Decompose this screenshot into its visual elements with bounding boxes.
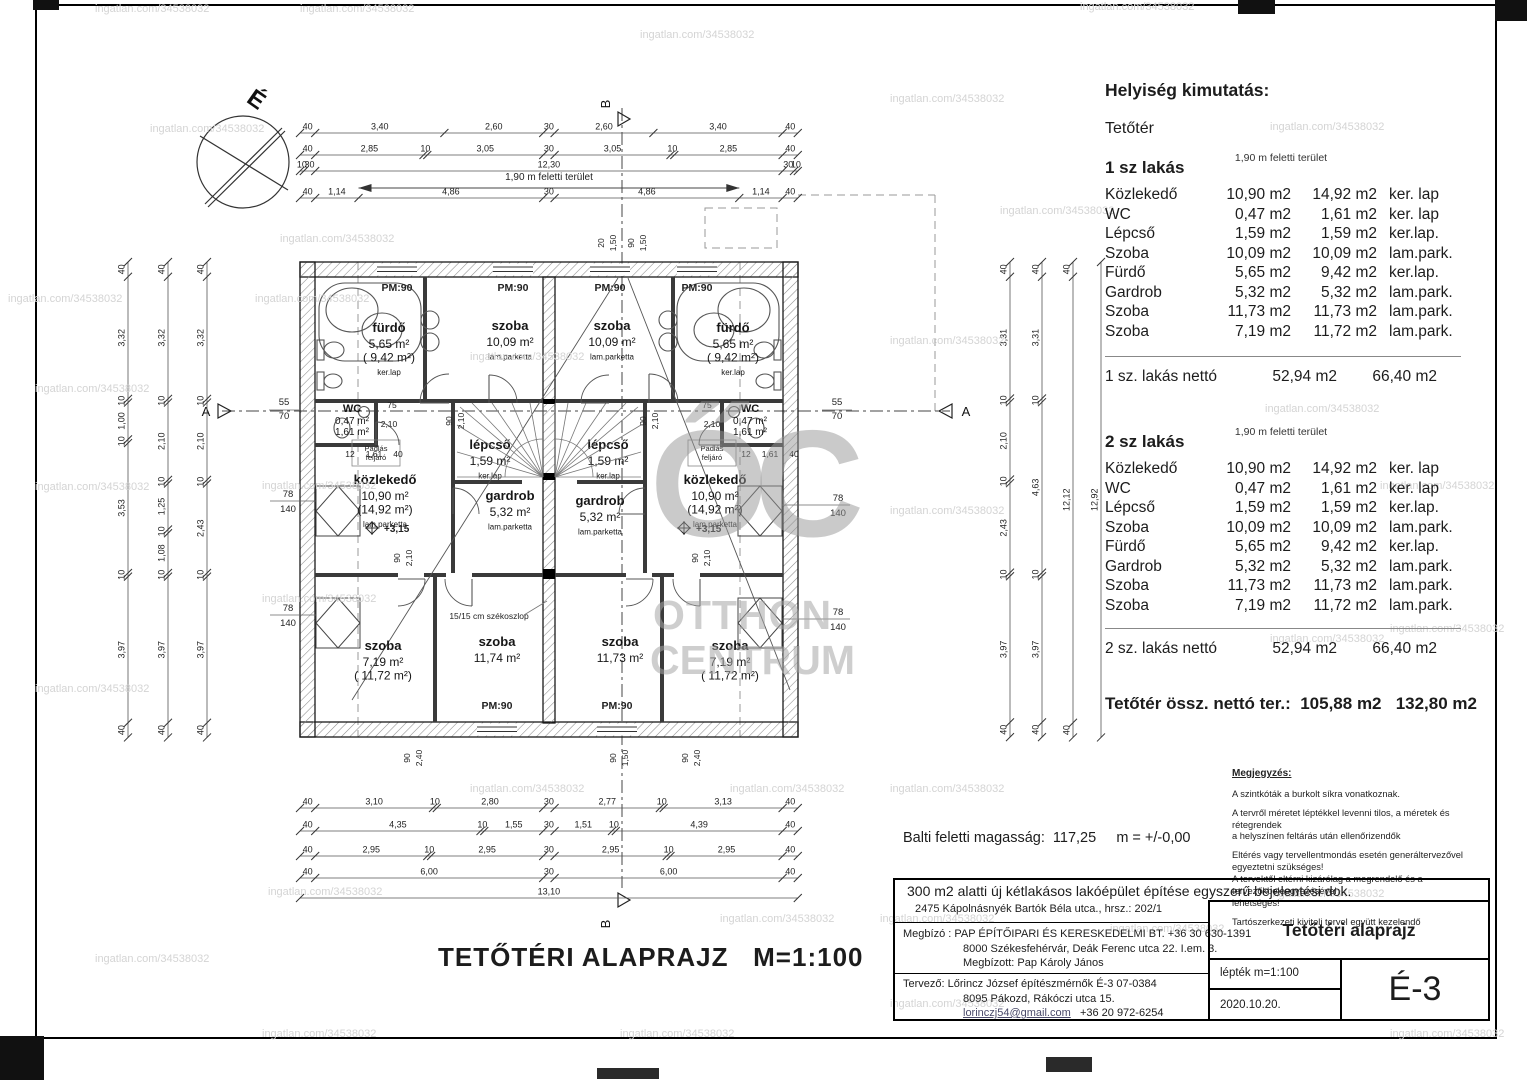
watermark-text: ingatlan.com/34538032: [890, 783, 1004, 795]
dim-label: 1,14: [328, 187, 346, 197]
small-dim-label: 1,50: [608, 234, 618, 251]
door-swing-arc: [581, 375, 609, 403]
schedule-row: Szoba7,19 m211,72 m2lam.park.: [1105, 323, 1483, 343]
dim-label: 2,95: [478, 845, 496, 855]
wall-left: [300, 262, 315, 737]
small-dim-label: 20: [596, 238, 606, 248]
watermark-text: ingatlan.com/34538032: [720, 913, 834, 925]
small-dim-label: 90: [402, 753, 412, 763]
room-label: 7,19 m²: [363, 655, 404, 669]
window-size-label: 140: [830, 622, 846, 633]
room-label: fürdő: [372, 320, 405, 335]
watermark-text: ingatlan.com/34538032: [262, 1028, 376, 1040]
dim-label: 2,85: [720, 144, 738, 154]
dim-label: 10: [609, 820, 619, 830]
schedule-title: Helyiség kimutatás:: [1105, 80, 1483, 101]
dim-label: 3,97: [196, 641, 206, 659]
schedule-cell: 11,73 m2: [1291, 577, 1377, 597]
schedule-cell: lam.park.: [1377, 245, 1483, 265]
watermark-text: ingatlan.com/34538032: [300, 3, 414, 15]
schedule-row: Közlekedő10,90 m214,92 m2ker. lap: [1105, 460, 1483, 480]
dim-label: 10: [999, 569, 1009, 579]
room-label: szoba: [712, 638, 750, 653]
small-dim-label: 2,10: [404, 549, 414, 566]
dim-label: 10: [999, 395, 1009, 405]
dim-label: 30: [544, 820, 554, 830]
dim-label: 40: [1062, 264, 1072, 274]
schedule-cell: Szoba: [1105, 245, 1207, 265]
room-label: szoba: [492, 318, 530, 333]
total-label: Tetőtér össz. nettó ter.:: [1105, 694, 1291, 713]
door-swing-arc: [626, 579, 653, 606]
small-dim-label: 2,10: [702, 549, 712, 566]
room-label: lam.parketta: [590, 353, 635, 362]
unit1-net1: 52,94 m2: [1241, 368, 1337, 386]
schedule-cell: 14,92 m2: [1291, 186, 1377, 206]
small-dim-label: 1,61: [762, 449, 779, 459]
roof-window-icon: [738, 486, 782, 536]
dim-label: 40: [1031, 264, 1041, 274]
room-label: 11,74 m²: [474, 651, 520, 665]
dim-label: 10: [664, 845, 674, 855]
dim-label: 40: [196, 264, 206, 274]
schedule-cell: Gardrob: [1105, 284, 1207, 304]
dim-label: 2,85: [361, 144, 379, 154]
schedule-cell: 0,47 m2: [1207, 206, 1291, 226]
room-label: 7,19 m²: [710, 655, 751, 669]
watermark-text: ingatlan.com/34538032: [35, 481, 149, 493]
dim-label: 10: [424, 845, 434, 855]
parapet-label: PM:90: [382, 282, 413, 294]
watermark-text: ingatlan.com/34538032: [35, 383, 149, 395]
watermark-text: ingatlan.com/34538032: [1080, 1, 1194, 13]
drawing-title: TETŐTÉRI ALAPRAJZ M=1:100: [438, 942, 864, 973]
room-label: ker.lap: [596, 472, 620, 481]
project-description: 300 m2 alatti új kétlakásos lakóépület é…: [907, 883, 1351, 899]
schedule-cell: lam.park.: [1377, 577, 1483, 597]
room-label: 5,32 m²: [580, 510, 621, 524]
wall-bottom: [300, 722, 798, 737]
title-block-right: Tetőtéri alaprajz lépték m=1:100 2020.10…: [1208, 900, 1488, 1019]
window-size-label: 78: [833, 607, 844, 618]
dim-label: 12,30: [538, 160, 561, 170]
schedule-cell: Közlekedő: [1105, 460, 1207, 480]
dim-label: 40: [999, 725, 1009, 735]
dim-label: 10: [196, 570, 206, 580]
dim-label: 1,00: [117, 412, 127, 430]
dim-label: 40: [785, 845, 795, 855]
room-label: 10,09 m²: [588, 335, 635, 349]
room-label: 10,09 m²: [486, 335, 533, 349]
designer-line: Tervező: Lőrincz József építészmérnők É-…: [903, 977, 1163, 992]
parapet-label: PM:90: [602, 700, 633, 712]
dim-label: 2,77: [598, 797, 616, 807]
schedule-row: WC0,47 m21,61 m2ker. lap: [1105, 206, 1483, 226]
room-label: szoba: [365, 638, 403, 653]
dim-label: 40: [1031, 725, 1041, 735]
room-label: 0,47 m²: [733, 416, 768, 427]
level-label: +3,15: [696, 524, 722, 535]
small-dim-label: 90: [444, 416, 454, 426]
unit1-net2: 66,40 m2: [1337, 368, 1437, 386]
dim-label: 10: [1031, 569, 1041, 579]
dim-label: 3,40: [709, 122, 727, 132]
small-dim-label: 90: [680, 753, 690, 763]
schedule-cell: 11,73 m2: [1207, 577, 1291, 597]
room-label: ( 11,72 m²): [354, 669, 412, 683]
offset-label: 70: [279, 411, 290, 422]
dim-label: 40: [785, 797, 795, 807]
schedule-row: Szoba11,73 m211,73 m2lam.park.: [1105, 303, 1483, 323]
room-label: gardrob: [575, 493, 624, 508]
schedule-cell: 0,47 m2: [1207, 480, 1291, 500]
schedule-row: Lépcső1,59 m21,59 m2ker.lap.: [1105, 225, 1483, 245]
bidet-icon: [774, 372, 781, 390]
divider: [895, 973, 1210, 974]
room-label: gardrob: [485, 488, 534, 503]
schedule-cell: Közlekedő: [1105, 186, 1207, 206]
dim-label: 10: [117, 436, 127, 446]
dim-label: 3,53: [117, 499, 127, 517]
parapet-label: PM:90: [498, 282, 529, 294]
dim-label: 3,10: [365, 797, 383, 807]
schedule-cell: lam.park.: [1377, 284, 1483, 304]
dim-label: 3,97: [1031, 641, 1041, 659]
schedule-cell: lam.park.: [1377, 323, 1483, 343]
dim-label: 3,97: [999, 641, 1009, 659]
dim-label: 1,14: [752, 187, 770, 197]
schedule-cell: 10,09 m2: [1291, 245, 1377, 265]
schedule-cell: 1,59 m2: [1291, 225, 1377, 245]
dim-label: 4,35: [389, 820, 407, 830]
room-label: (14,92 m²): [687, 503, 742, 517]
schedule-cell: 11,73 m2: [1291, 303, 1377, 323]
schedule-cell: Gardrob: [1105, 558, 1207, 578]
dim-label: 10: [999, 476, 1009, 486]
room-label: szoba: [479, 634, 517, 649]
schedule-row: Gardrob5,32 m25,32 m2lam.park.: [1105, 284, 1483, 304]
section-a-label-right: A: [962, 404, 971, 419]
door-swing-arc: [619, 488, 645, 514]
schedule-cell: 10,90 m2: [1207, 460, 1291, 480]
schedule-cell: lam.park.: [1377, 303, 1483, 323]
schedule-cell: lam.park.: [1377, 519, 1483, 539]
room-label: lam.parketta: [578, 528, 623, 537]
dim-label: 40: [117, 725, 127, 735]
room-label: 5,65 m²: [369, 337, 410, 351]
schedule-cell: ker. lap: [1377, 460, 1483, 480]
room-label: szoba: [602, 634, 640, 649]
small-dim-label: 2,40: [692, 749, 702, 766]
watermark-text: ingatlan.com/34538032: [262, 480, 376, 492]
watermark-text: ingatlan.com/34538032: [280, 233, 394, 245]
dim-label: 10: [430, 797, 440, 807]
schedule-cell: 9,42 m2: [1291, 538, 1377, 558]
room-label: 0,47 m²: [335, 416, 370, 427]
door-swing-arc: [398, 579, 425, 606]
offset-label: 55: [279, 397, 290, 408]
sheet-number: É-3: [1342, 960, 1488, 1019]
unit2-net-row: 2 sz. lakás nettó 52,94 m2 66,40 m2: [1105, 640, 1437, 658]
dim-label: 4,63: [1031, 479, 1041, 497]
schedule-cell: 5,32 m2: [1291, 284, 1377, 304]
schedule-cell: 10,09 m2: [1207, 245, 1291, 265]
unit1-header: 1 sz lakás 1,90 m feletti terület: [1105, 158, 1184, 178]
schedule-cell: 1,61 m2: [1291, 480, 1377, 500]
room-schedule: Helyiség kimutatás: Tetőtér 1 sz lakás 1…: [1105, 80, 1483, 740]
parapet-label: PM:90: [682, 282, 713, 294]
schedule-cell: 11,72 m2: [1291, 323, 1377, 343]
dim-label: 10: [157, 570, 167, 580]
designer-phone: +36 20 972-6254: [1080, 1007, 1164, 1019]
schedule-row: Közlekedő10,90 m214,92 m2ker. lap: [1105, 186, 1483, 206]
schedule-cell: Fürdő: [1105, 264, 1207, 284]
schedule-cell: 5,32 m2: [1207, 284, 1291, 304]
dim-label: 10: [196, 396, 206, 406]
room-label: 10,90 m²: [691, 489, 738, 503]
arrowhead-icon: [726, 184, 739, 192]
room-label: ker.lap: [721, 368, 745, 377]
schedule-cell: WC: [1105, 206, 1207, 226]
watermark-text: ingatlan.com/34538032: [255, 293, 369, 305]
room-label: 11,73 m²: [597, 651, 643, 665]
small-dim-label: 90: [392, 553, 402, 563]
small-dim-label: 1,61: [366, 449, 383, 459]
unit1-rule: [1105, 356, 1461, 357]
unit1-name: 1 sz lakás: [1105, 158, 1184, 177]
client-line: Megbízó : PAP ÉPÍTŐIPARI ÉS KERESKEDELMI…: [903, 927, 1251, 942]
dim-label: 1,25: [157, 498, 167, 516]
schedule-cell: 5,65 m2: [1207, 538, 1291, 558]
dim-label: 3,32: [117, 329, 127, 347]
designer-info: Tervező: Lőrincz József építészmérnők É-…: [903, 977, 1163, 1021]
schedule-cell: 10,09 m2: [1291, 519, 1377, 539]
unit2-name: 2 sz lakás: [1105, 432, 1184, 451]
small-dim-label: 90: [690, 553, 700, 563]
compass-north-label: É: [242, 83, 271, 115]
small-dim-label: 2,10: [456, 412, 466, 429]
schedule-cell: 10,90 m2: [1207, 186, 1291, 206]
unit2-header: 2 sz lakás 1,90 m feletti terület: [1105, 432, 1184, 452]
watermark-text: ingatlan.com/34538032: [890, 335, 1004, 347]
dim-label: 10: [477, 820, 487, 830]
dim-label: 40: [303, 845, 313, 855]
dim-label: 2,10: [196, 432, 206, 450]
schedule-cell: Lépcső: [1105, 225, 1207, 245]
small-dim-label: 12: [741, 449, 751, 459]
schedule-row: Szoba10,09 m210,09 m2lam.park.: [1105, 245, 1483, 265]
dim-label: 2,10: [999, 432, 1009, 450]
title-block: 300 m2 alatti új kétlakásos lakóépület é…: [893, 878, 1490, 1021]
small-dim-label: 2,40: [414, 749, 424, 766]
watermark-text: ingatlan.com/34538032: [890, 505, 1004, 517]
schedule-cell: Szoba: [1105, 597, 1207, 617]
window-size-label: 140: [280, 618, 296, 629]
dim-label: 10: [157, 396, 167, 406]
small-dim-label: 12: [345, 449, 355, 459]
section-b-label-bottom: B: [598, 920, 613, 929]
arrowhead-icon: [359, 184, 372, 192]
schedule-cell: 10,09 m2: [1207, 519, 1291, 539]
dim-label: 40: [117, 264, 127, 274]
small-dim-label: 75: [387, 400, 397, 410]
roof-window-icon: [316, 486, 360, 536]
designer-email-link[interactable]: lorinczj54@gmail.com: [963, 1007, 1071, 1019]
watermark-text: ingatlan.com/34538032: [640, 29, 754, 41]
stair-tread: [512, 403, 543, 477]
parapet-label: PM:90: [482, 700, 513, 712]
column-note: 15/15 cm székoszlop: [449, 611, 529, 621]
watermark-text: ingatlan.com/34538032: [150, 123, 264, 135]
schedule-cell: lam.park.: [1377, 558, 1483, 578]
dim-label: 40: [303, 820, 313, 830]
unit2-rows: Közlekedő10,90 m214,92 m2ker. lapWC0,47 …: [1105, 460, 1483, 616]
schedule-cell: ker. lap: [1377, 480, 1483, 500]
dim-label: 10: [117, 396, 127, 406]
schedule-cell: 5,65 m2: [1207, 264, 1291, 284]
above-area-label: 1,90 m feletti terület: [505, 172, 593, 183]
room-label: 5,32 m²: [490, 505, 531, 519]
architectural-drawing-sheet: { "watermark": {"text": "ingatlan.com/34…: [0, 0, 1527, 1080]
schedule-cell: WC: [1105, 480, 1207, 500]
unit2-net-label: 2 sz. lakás nettó: [1105, 640, 1241, 658]
dim-label: 40: [303, 797, 313, 807]
dim-label: 2,43: [196, 519, 206, 537]
schedule-cell: 14,92 m2: [1291, 460, 1377, 480]
schedule-cell: 1,59 m2: [1207, 499, 1291, 519]
small-dim-label: 40: [789, 449, 799, 459]
dim-label: 10: [1031, 395, 1041, 405]
dim-label: 40: [303, 867, 313, 877]
schedule-cell: Lépcső: [1105, 499, 1207, 519]
dim-label: 2,95: [718, 845, 736, 855]
watermark-text: ingatlan.com/34538032: [890, 93, 1004, 105]
sheet-name: Tetőtéri alaprajz: [1210, 902, 1488, 958]
wall-right: [783, 262, 798, 737]
unit1-net-row: 1 sz. lakás nettó 52,94 m2 66,40 m2: [1105, 368, 1437, 386]
unit1-col-note: 1,90 m feletti terület: [1227, 152, 1335, 164]
dim-label: 3,05: [604, 144, 622, 154]
client-info: Megbízó : PAP ÉPÍTŐIPARI ÉS KERESKEDELMI…: [903, 927, 1251, 971]
schedule-total-row: Tetőtér össz. nettó ter.: 105,88 m2 132,…: [1105, 694, 1477, 714]
schedule-cell: Szoba: [1105, 577, 1207, 597]
divider: [895, 922, 1210, 923]
unit2-rule: [1105, 628, 1461, 629]
schedule-row: WC0,47 m21,61 m2ker. lap: [1105, 480, 1483, 500]
dim-label: 12,12: [1062, 488, 1072, 511]
room-label: ker.lap: [377, 368, 401, 377]
room-label: 5,65 m²: [713, 337, 754, 351]
dim-label: 10: [667, 144, 677, 154]
schedule-cell: 11,73 m2: [1207, 303, 1291, 323]
room-label: szoba: [594, 318, 632, 333]
dim-label: 30: [544, 845, 554, 855]
watermark-text: ingatlan.com/34538032: [268, 886, 382, 898]
parapet-label: PM:90: [595, 282, 626, 294]
door-swing-arc: [673, 579, 700, 606]
wall-party: [543, 277, 555, 723]
schedule-cell: ker.lap.: [1377, 225, 1483, 245]
dim-label: 40: [196, 725, 206, 735]
room-label: WC: [741, 403, 759, 415]
room-label: ker.lap: [478, 472, 502, 481]
dim-label: 6,00: [660, 867, 678, 877]
baltic-height-note: Balti feletti magasság: 117,25 m = +/-0,…: [903, 830, 1190, 846]
schedule-cell: 1,59 m2: [1291, 499, 1377, 519]
dim-label: 40: [785, 122, 795, 132]
sheet-scale: lépték m=1:100: [1210, 960, 1340, 990]
dim-label: 10: [157, 526, 167, 536]
small-dim-label: 2,10: [381, 419, 398, 429]
schedule-row: Szoba11,73 m211,73 m2lam.park.: [1105, 577, 1483, 597]
note-item: A tervről méretet léptékkel levenni tilo…: [1232, 808, 1488, 844]
dim-label: 3,13: [714, 797, 732, 807]
dim-label: 1,55: [505, 820, 523, 830]
dim-label: 30: [544, 122, 554, 132]
schedule-row: Szoba7,19 m211,72 m2lam.park.: [1105, 597, 1483, 617]
dim-label: 3,97: [117, 641, 127, 659]
offset-label: 55: [832, 397, 843, 408]
dim-label: 40: [1062, 725, 1072, 735]
watermark-text: ingatlan.com/34538032: [95, 953, 209, 965]
watermark-text: ingatlan.com/34538032: [730, 783, 844, 795]
schedule-cell: ker.lap.: [1377, 499, 1483, 519]
room-label: (14,92 m²): [357, 503, 412, 517]
small-dim-label: 2,10: [650, 412, 660, 429]
attic-label: feljáró: [702, 453, 722, 462]
unit2-col-note: 1,90 m feletti terület: [1227, 426, 1335, 438]
sheet-date: 2020.10.20.: [1210, 990, 1340, 1011]
dim-label: 40: [785, 867, 795, 877]
section-b-label-top: B: [598, 100, 613, 109]
schedule-cell: Szoba: [1105, 303, 1207, 323]
schedule-level: Tetőtér: [1105, 120, 1154, 138]
dim-label: 2,60: [595, 122, 613, 132]
wall-top: [300, 262, 798, 277]
schedule-cell: ker. lap: [1377, 206, 1483, 226]
room-label: ( 11,72 m²): [701, 669, 759, 683]
dim-label: 2,95: [362, 845, 380, 855]
dim-label: 4,39: [690, 820, 708, 830]
unit2-net1: 52,94 m2: [1241, 640, 1337, 658]
unit1-rows: Közlekedő10,90 m214,92 m2ker. lapWC0,47 …: [1105, 186, 1483, 342]
room-label: WC: [343, 403, 361, 415]
small-dim-label: 75: [702, 400, 712, 410]
dim-label: 6,00: [420, 867, 438, 877]
schedule-row: Szoba10,09 m210,09 m2lam.park.: [1105, 519, 1483, 539]
dim-label: 40: [999, 264, 1009, 274]
dim-label: 10: [791, 160, 801, 170]
small-dim-label: 90: [626, 238, 636, 248]
schedule-cell: ker.lap.: [1377, 264, 1483, 284]
section-b-triangle-top: [618, 112, 630, 126]
dim-label: 40: [303, 187, 313, 197]
dim-label: 30: [304, 160, 314, 170]
window-size-label: 140: [830, 508, 846, 519]
project-address: 2475 Kápolnásnyék Bartók Béla utca., hrs…: [915, 903, 1162, 915]
watermark-text: ingatlan.com/34538032: [35, 683, 149, 695]
bidet-icon: [317, 372, 324, 390]
room-label: ( 9,42 m²): [363, 351, 415, 365]
room-label: ( 9,42 m²): [707, 351, 759, 365]
dim-label: 3,40: [371, 122, 389, 132]
door-swing-arc: [445, 579, 472, 606]
dim-label: 2,80: [481, 797, 499, 807]
window-size-label: 140: [280, 504, 296, 515]
dim-label: 40: [785, 144, 795, 154]
offset-label: 70: [832, 411, 843, 422]
notes-title: Megjegyzés:: [1232, 768, 1488, 781]
